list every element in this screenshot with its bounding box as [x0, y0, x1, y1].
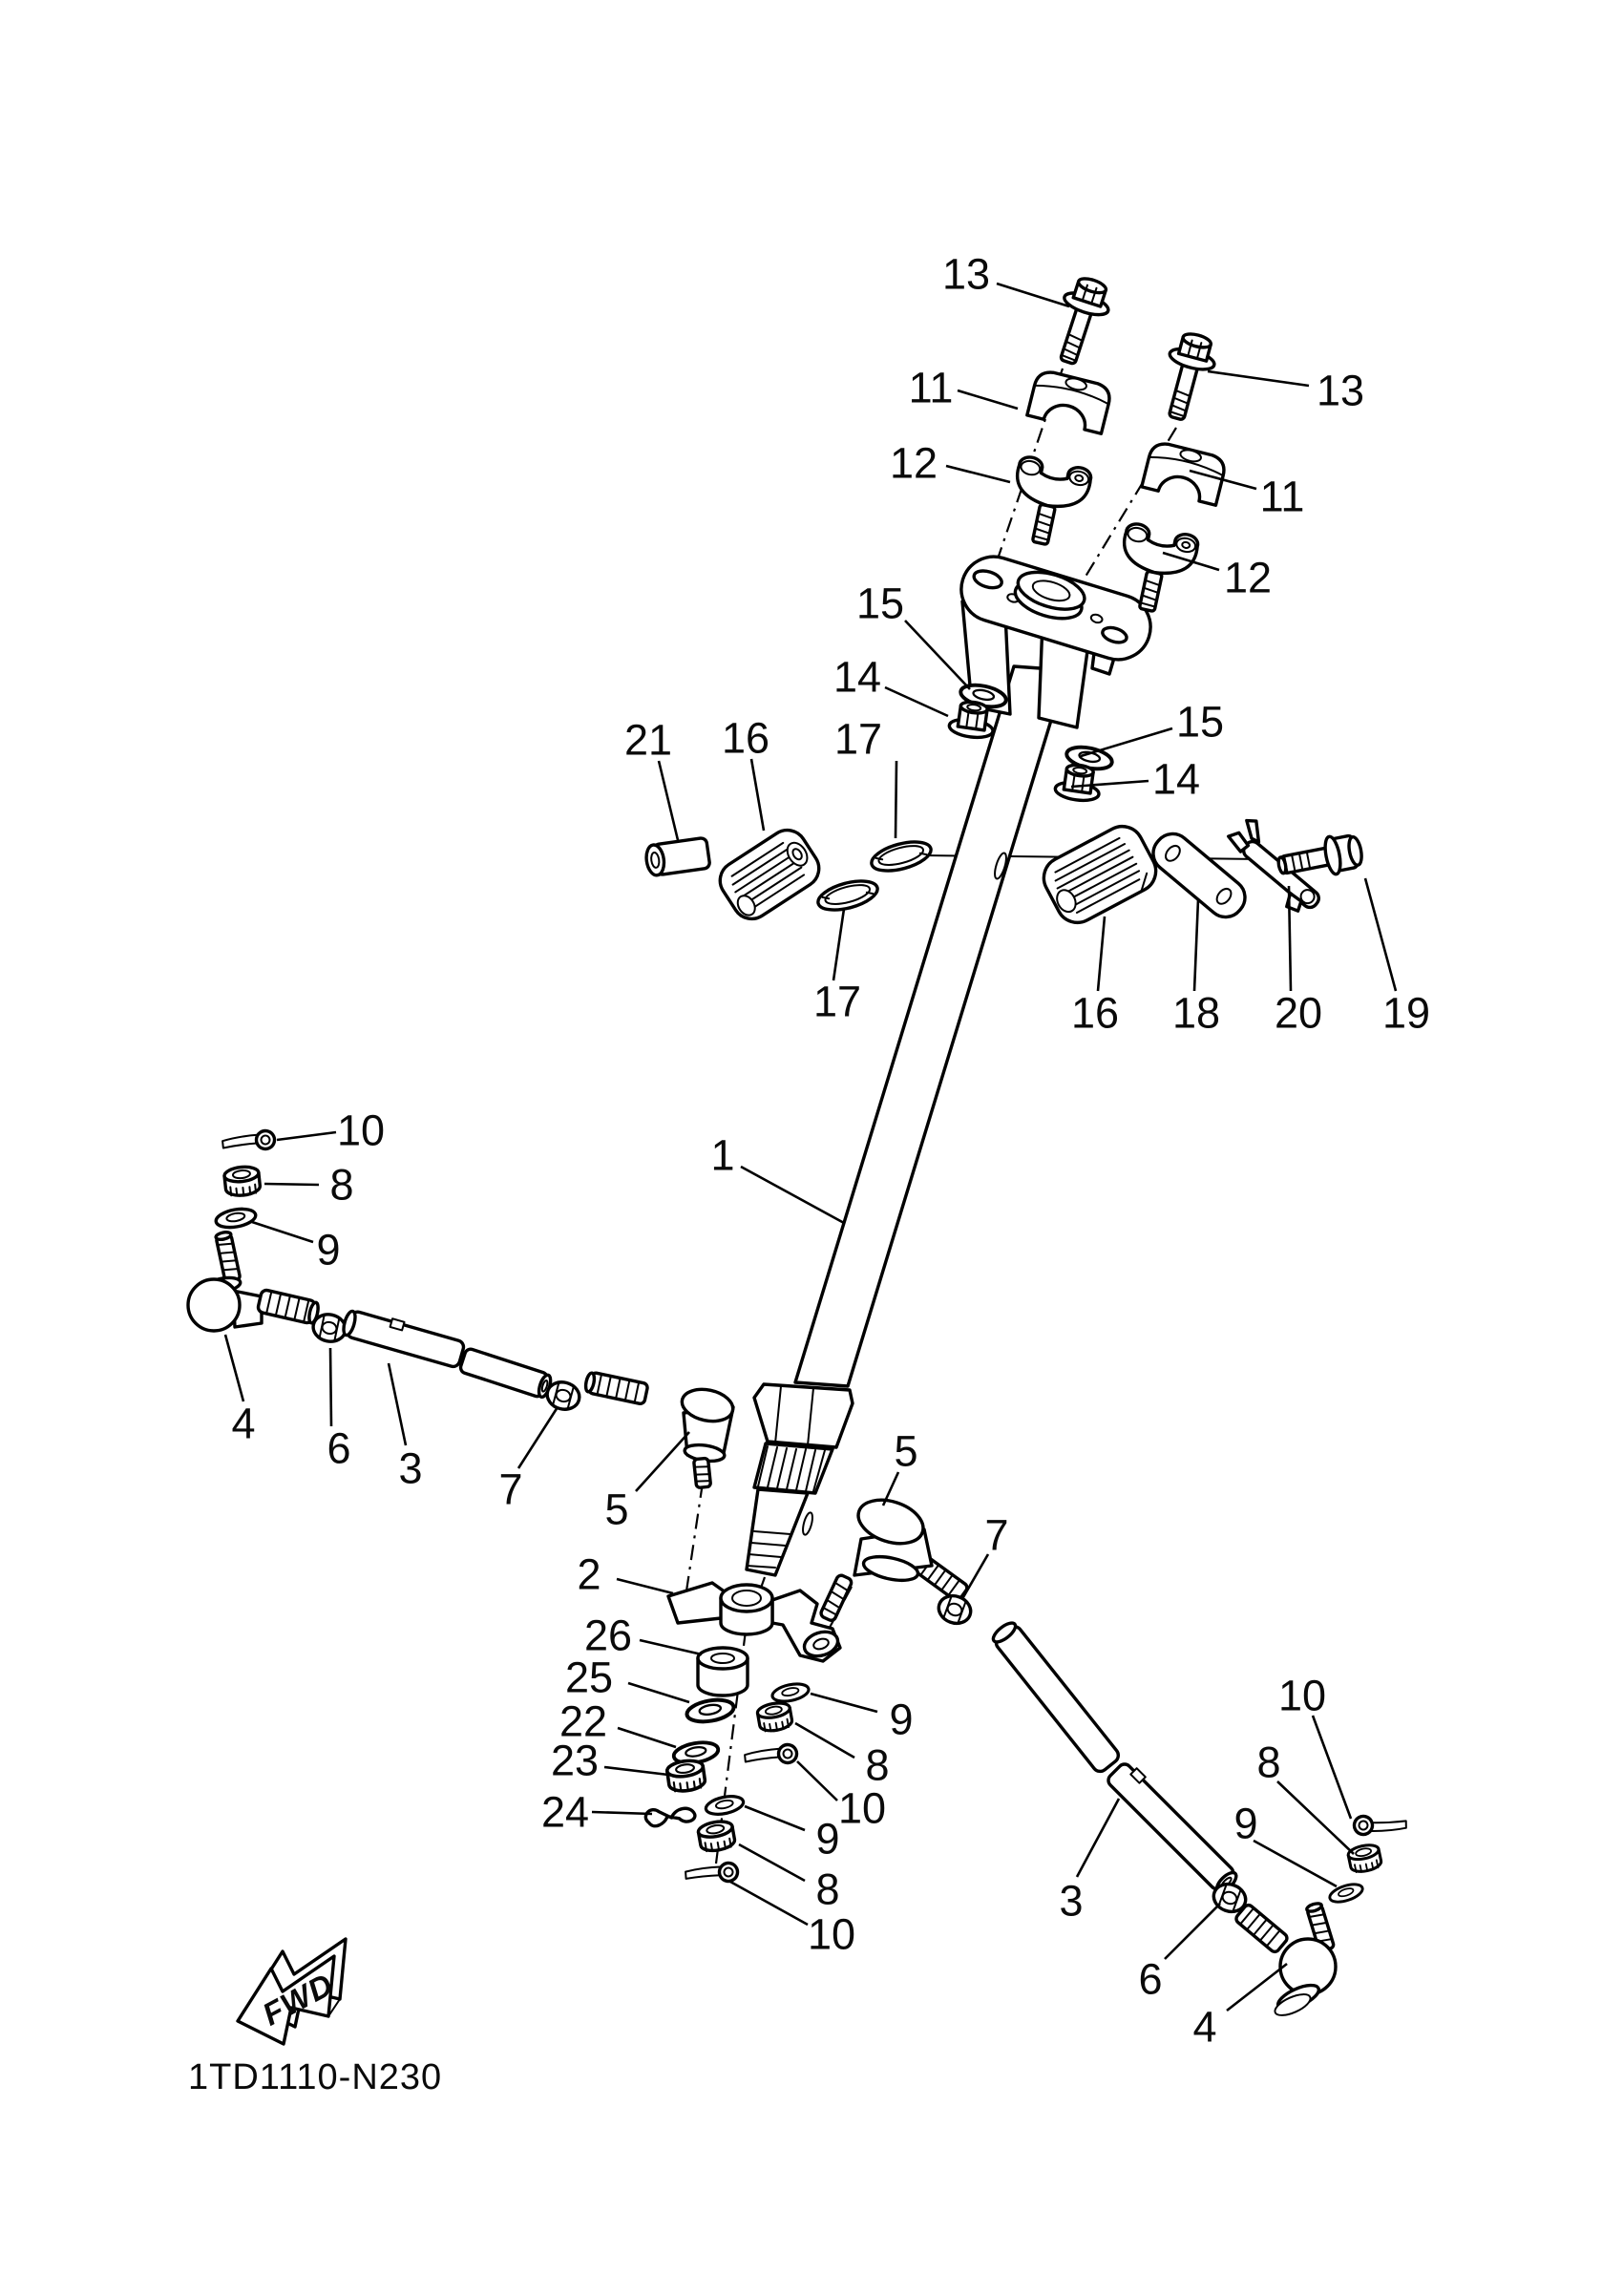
callout-9: 9 — [815, 1815, 839, 1864]
leader-line-23 — [604, 1767, 668, 1775]
leader-line-7 — [963, 1554, 988, 1597]
leader-line-25 — [628, 1683, 689, 1702]
washer-9-arm — [770, 1681, 810, 1704]
leader-line-9 — [745, 1806, 805, 1830]
leader-line-12 — [946, 466, 1010, 482]
callout-6: 6 — [1138, 1955, 1162, 2004]
leader-line-9 — [811, 1694, 877, 1712]
steering-arm-2 — [668, 1583, 841, 1661]
flange-bolt-13-right — [1154, 329, 1221, 424]
castle-nut-8-left — [223, 1166, 261, 1198]
clip-24 — [644, 1804, 695, 1827]
tie-rod-end-5-left — [584, 1371, 736, 1487]
castle-nut-8-right — [1347, 1843, 1382, 1874]
upper-holder-11-left — [1027, 369, 1113, 433]
callout-19: 19 — [1382, 989, 1430, 1038]
nut-23 — [666, 1759, 706, 1793]
leader-line-4 — [225, 1335, 243, 1401]
leader-line-10 — [1313, 1716, 1351, 1819]
leader-line-13 — [1208, 371, 1309, 386]
lower-holder-12-left — [1004, 455, 1093, 551]
steering-bracket-group — [644, 1583, 840, 1889]
callout-12: 12 — [1224, 554, 1272, 602]
callout-4: 4 — [231, 1400, 255, 1448]
bushing-26 — [698, 1648, 748, 1696]
callout-8: 8 — [815, 1865, 839, 1914]
parts-diagram-page: FWD 1TD1110-N230 13131111121215142116171… — [0, 0, 1623, 2296]
flange-bolt-13-left — [1045, 273, 1115, 369]
part-code: 1TD1110-N230 — [188, 2057, 442, 2097]
shaft-hex-section — [754, 1384, 853, 1447]
cotter-pin-10-arm — [744, 1738, 798, 1770]
leader-line-5 — [636, 1432, 689, 1491]
leader-line-7 — [518, 1407, 558, 1468]
leader-line-8 — [739, 1844, 805, 1881]
leader-line-6 — [1165, 1904, 1220, 1959]
leader-line-13 — [997, 284, 1069, 306]
steering-shaft — [747, 549, 1158, 1575]
callout-13: 13 — [1317, 367, 1364, 415]
seal-17-lower — [815, 875, 881, 916]
callout-14: 14 — [1152, 755, 1200, 804]
leader-line-17 — [833, 909, 844, 980]
tie-rod-end-4-left — [188, 1231, 320, 1331]
castle-nut-8-center — [697, 1820, 736, 1854]
leader-line-8 — [795, 1723, 854, 1758]
callout-2: 2 — [577, 1550, 601, 1599]
leader-line-16 — [751, 759, 764, 831]
callout-6: 6 — [327, 1424, 350, 1473]
callout-11: 11 — [909, 364, 954, 412]
callout-14: 14 — [833, 653, 881, 702]
leader-line-3 — [389, 1363, 406, 1445]
leader-line-22 — [618, 1728, 676, 1747]
castle-nut-8-arm — [756, 1701, 793, 1734]
leader-line-9 — [1254, 1841, 1337, 1886]
callout-8: 8 — [865, 1741, 889, 1790]
shaft-slot-lower — [801, 1511, 814, 1535]
callouts-layer: 1313111112121514211617151417161820191089… — [225, 250, 1430, 2052]
seal-17-upper — [869, 836, 935, 876]
callout-5: 5 — [894, 1427, 917, 1476]
callout-12: 12 — [890, 439, 938, 488]
leader-line-16 — [1098, 916, 1105, 991]
leader-line-11 — [958, 390, 1018, 409]
leader-line-2 — [617, 1579, 673, 1593]
callout-25: 25 — [565, 1654, 613, 1702]
bushing-21 — [644, 837, 710, 876]
leader-line-15 — [1081, 728, 1172, 756]
washer-9-center — [705, 1793, 746, 1817]
callout-8: 8 — [329, 1161, 353, 1210]
left-tie-rod-assembly — [188, 1124, 736, 1488]
fwd-arrow: FWD — [238, 1939, 346, 2044]
callout-1: 1 — [710, 1131, 734, 1180]
washer-9-left — [215, 1206, 257, 1230]
leader-line-24 — [592, 1812, 652, 1814]
callout-4: 4 — [1192, 2003, 1216, 2052]
leader-line-3 — [1077, 1799, 1119, 1877]
leader-line-15 — [905, 621, 970, 689]
leader-line-6 — [330, 1348, 331, 1426]
callout-9: 9 — [316, 1226, 340, 1274]
callout-15: 15 — [856, 579, 904, 628]
callout-18: 18 — [1172, 989, 1220, 1038]
tie-rod-3-right — [990, 1619, 1243, 1896]
callout-20: 20 — [1275, 989, 1322, 1038]
shaft-clamp-16-left — [713, 823, 827, 926]
callout-21: 21 — [624, 716, 672, 765]
leader-line-21 — [659, 761, 678, 840]
leader-line-10 — [277, 1132, 336, 1140]
tie-rod-end-4-right — [1234, 1902, 1336, 2019]
callout-9: 9 — [889, 1696, 913, 1744]
callout-3: 3 — [398, 1444, 422, 1493]
leader-line-8 — [264, 1184, 319, 1185]
callout-8: 8 — [1256, 1738, 1280, 1787]
leader-line-10 — [797, 1761, 837, 1801]
leader-line-1 — [741, 1167, 844, 1223]
callout-3: 3 — [1059, 1877, 1083, 1926]
shaft-tube — [795, 666, 1066, 1386]
nut-7-right — [935, 1591, 975, 1628]
leader-line-10 — [730, 1882, 808, 1925]
callout-9: 9 — [1233, 1800, 1257, 1848]
cotter-pin-10-left — [221, 1124, 276, 1156]
callout-13: 13 — [942, 250, 990, 299]
cotter-pin-10-right — [1352, 1808, 1407, 1844]
callout-24: 24 — [541, 1788, 589, 1837]
leader-line-9 — [252, 1222, 313, 1242]
callout-16: 16 — [1071, 989, 1119, 1038]
cotter-pin-10-center — [685, 1855, 740, 1889]
leader-line-18 — [1194, 899, 1198, 991]
callout-15: 15 — [1176, 698, 1224, 747]
callout-17: 17 — [813, 978, 861, 1026]
leader-line-14 — [885, 687, 948, 716]
upper-holder-11-right — [1142, 440, 1228, 505]
callout-7: 7 — [984, 1511, 1008, 1560]
right-tie-rod-end-upper — [819, 1492, 974, 1628]
leader-line-19 — [1365, 878, 1396, 991]
callout-17: 17 — [834, 715, 882, 764]
leader-line-17 — [896, 761, 896, 838]
diagram-canvas: FWD 1TD1110-N230 13131111121215142116171… — [0, 0, 1623, 2296]
callout-16: 16 — [722, 714, 769, 763]
callout-11: 11 — [1260, 473, 1305, 521]
callout-10: 10 — [838, 1784, 886, 1833]
leader-line-26 — [640, 1640, 702, 1654]
callout-10: 10 — [337, 1106, 385, 1155]
callout-7: 7 — [498, 1465, 522, 1514]
tie-rod-3-left — [341, 1306, 553, 1399]
callout-10: 10 — [1278, 1672, 1326, 1720]
washer-25 — [685, 1696, 735, 1725]
right-tie-rod-assembly — [990, 1619, 1408, 2019]
handlebar-clamp-group — [1004, 273, 1228, 618]
callout-5: 5 — [604, 1485, 628, 1534]
callout-23: 23 — [551, 1737, 599, 1785]
callout-10: 10 — [808, 1910, 855, 1959]
shaft-clamp-16-right — [1037, 819, 1164, 930]
